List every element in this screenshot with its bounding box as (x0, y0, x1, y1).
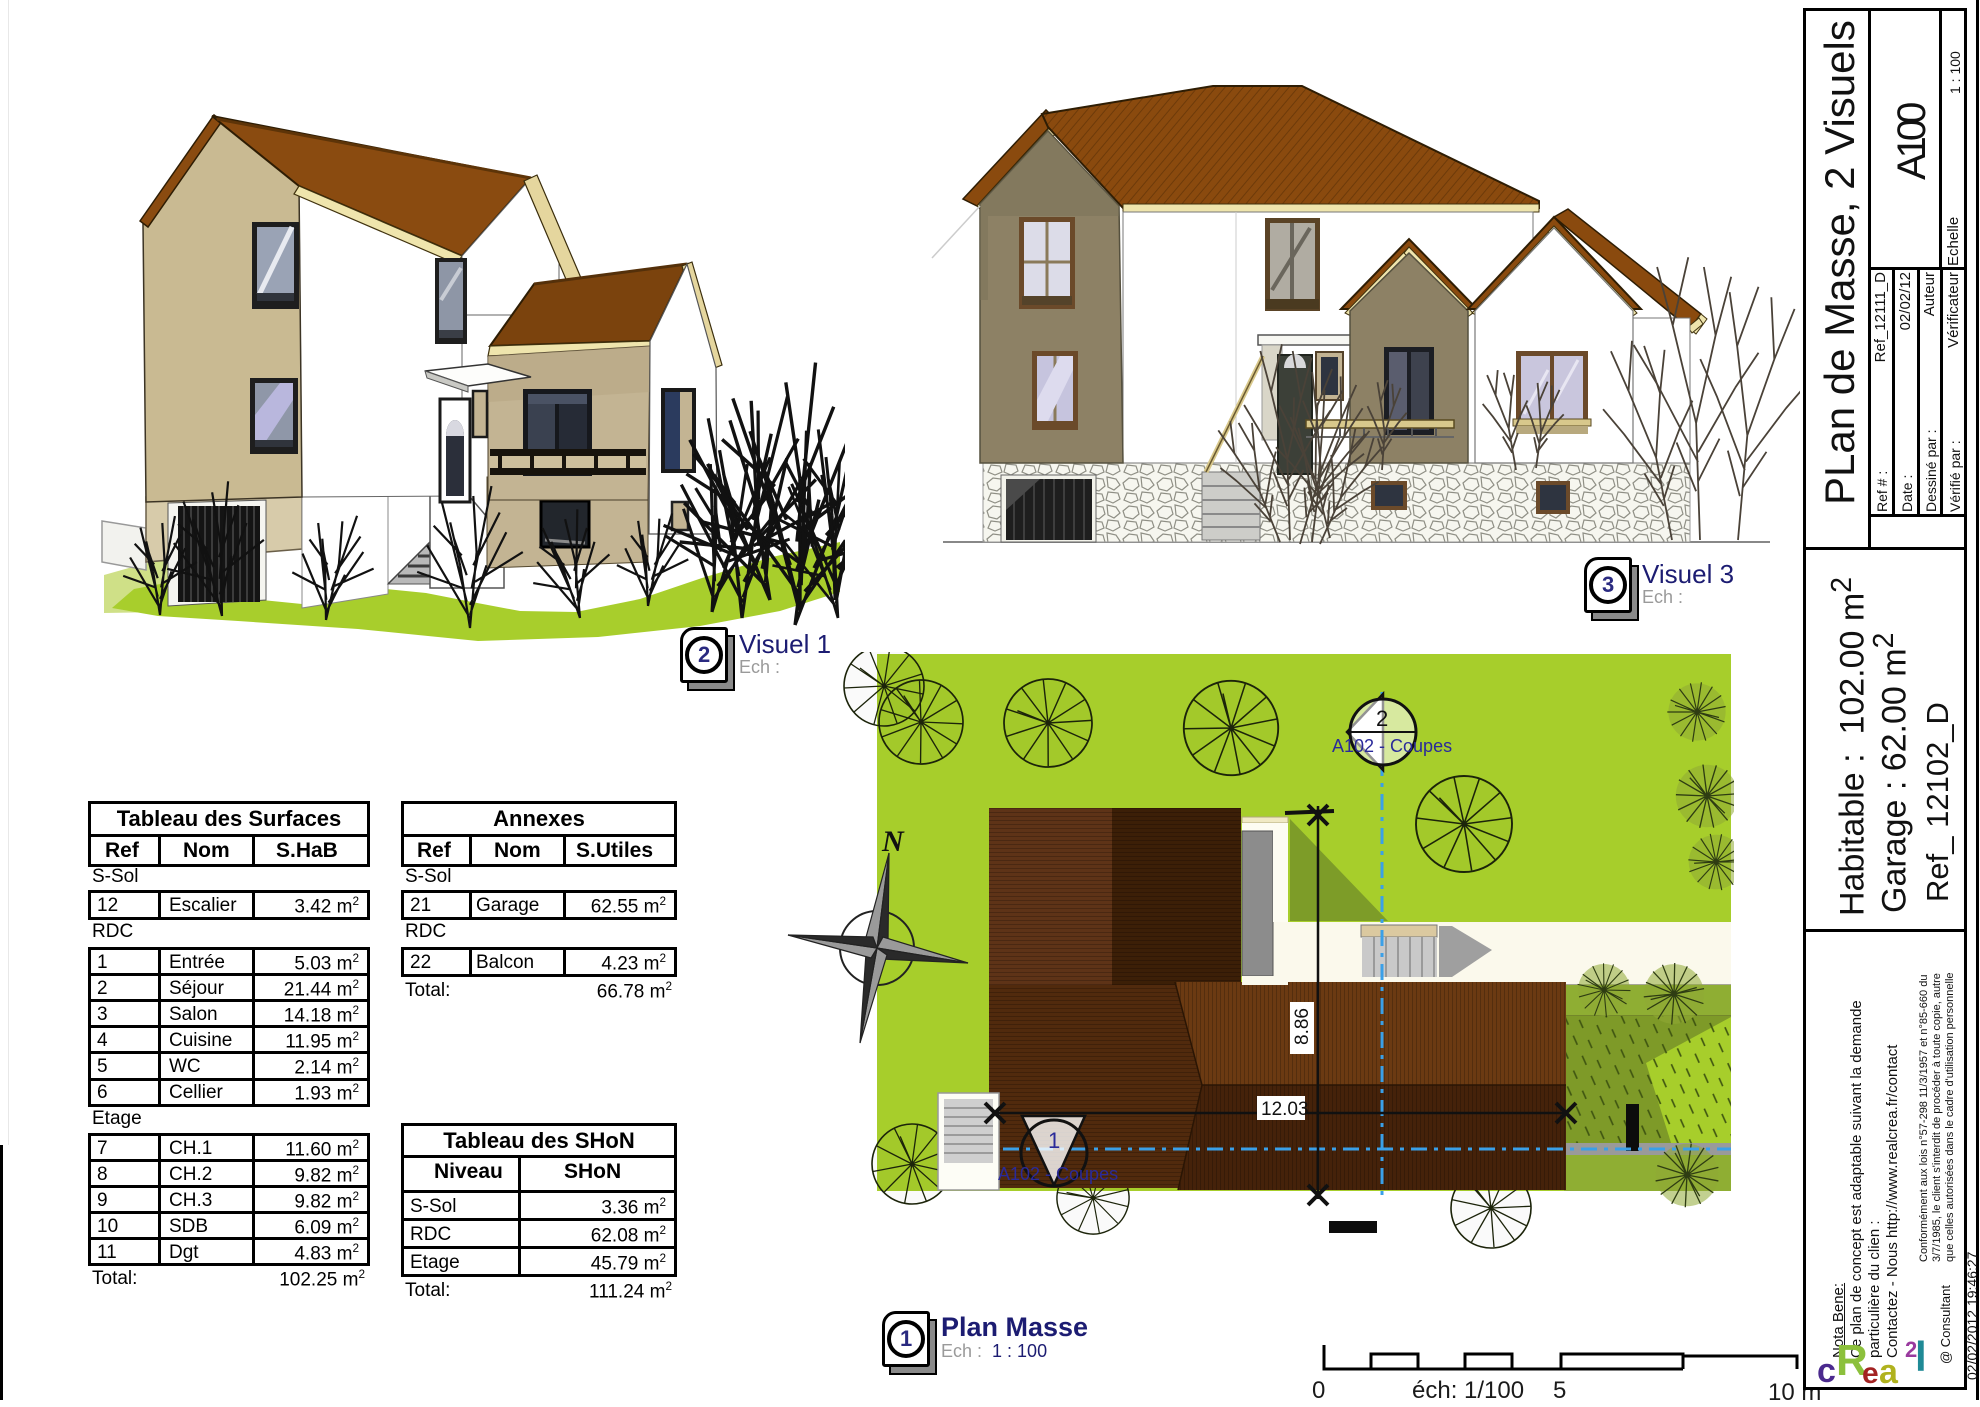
svg-text:A102 - Coupes: A102 - Coupes (1332, 736, 1452, 756)
svg-text:2: 2 (1376, 706, 1388, 731)
svg-text:1: 1 (1048, 1128, 1060, 1153)
svg-text:12.03: 12.03 (1261, 1099, 1309, 1120)
svg-text:A102 - Coupes: A102 - Coupes (998, 1164, 1118, 1184)
svg-text:8.86: 8.86 (1292, 1008, 1313, 1045)
svg-text:N: N (881, 825, 905, 858)
